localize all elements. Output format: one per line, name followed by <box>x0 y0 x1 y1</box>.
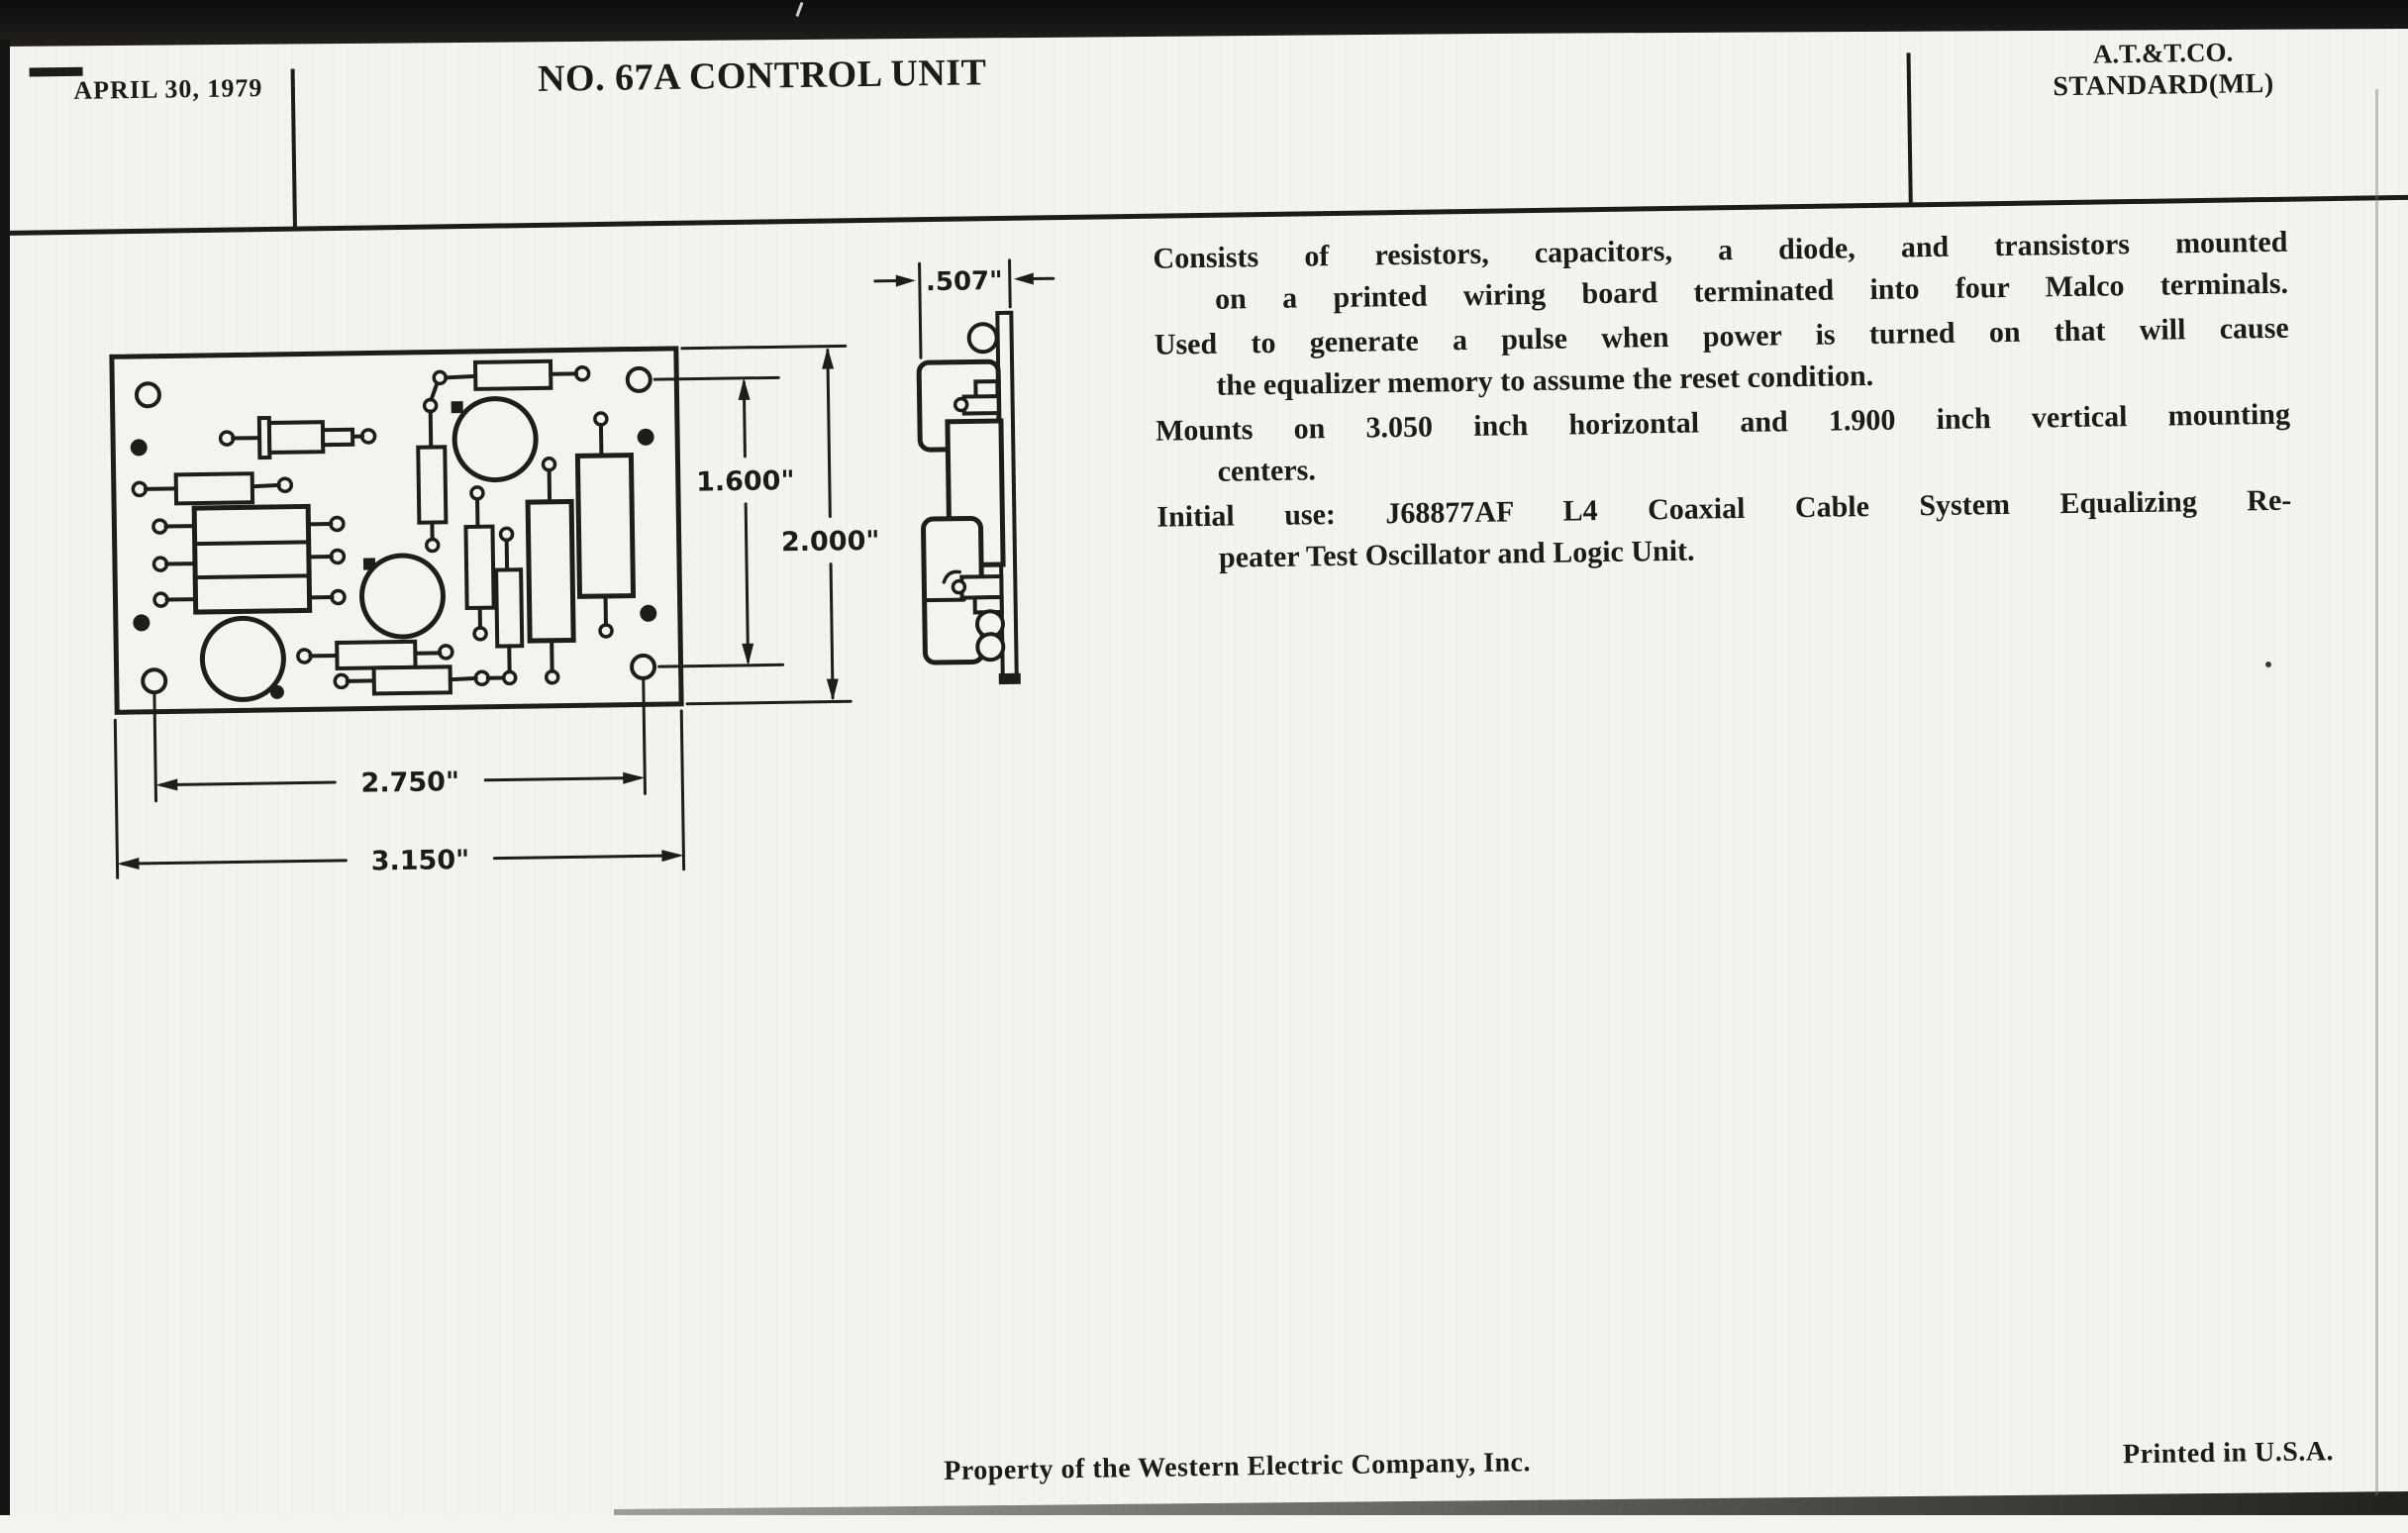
transistor-circle <box>454 398 537 480</box>
page-title: NO. 67A CONTROL UNIT <box>464 50 1059 102</box>
dim-label-full-height: 2.000" <box>781 526 880 558</box>
dim-label-hole-span: 2.750" <box>360 766 459 798</box>
transistor-circle <box>361 555 444 637</box>
dim-label-side-depth: .507" <box>926 266 1003 297</box>
header-divider-left <box>291 69 297 230</box>
left-scan-bar <box>0 40 10 1515</box>
board-side-view <box>918 313 1021 685</box>
mounting-hole <box>628 368 651 391</box>
pcb-drawing: 1.600" 2.000" 2.750" <box>62 256 1121 891</box>
org-name: A.T.&T.CO. <box>2009 35 2316 71</box>
mounting-hole <box>137 383 159 406</box>
org-block: A.T.&T.CO. STANDARD(ML) <box>2009 35 2317 105</box>
description: Consists of resistors, capacitors, a dio… <box>1153 222 2292 580</box>
dimension-side-depth: .507" <box>875 259 1054 358</box>
vertical-scan-line <box>2375 89 2378 1495</box>
footer-property-notice: Property of the Western Electric Company… <box>890 1446 1583 1487</box>
dim-label-full-width: 3.150" <box>370 845 469 876</box>
scanned-page: APRIL 30, 1979 NO. 67A CONTROL UNIT A.T.… <box>0 0 2408 1533</box>
mounting-hole <box>632 656 654 678</box>
header-date: APRIL 30, 1979 <box>59 73 277 106</box>
dim-label-inner-height: 1.600" <box>696 465 795 497</box>
mounting-hole <box>143 669 165 692</box>
header-divider-right <box>1907 52 1913 205</box>
dimension-full-height: 2.000" <box>682 346 882 704</box>
org-standard: STANDARD(ML) <box>2010 66 2317 105</box>
transistor-circle <box>202 618 284 700</box>
scan-speck <box>2265 662 2271 667</box>
footer-printed-notice: Printed in U.S.A. <box>2079 1436 2376 1472</box>
